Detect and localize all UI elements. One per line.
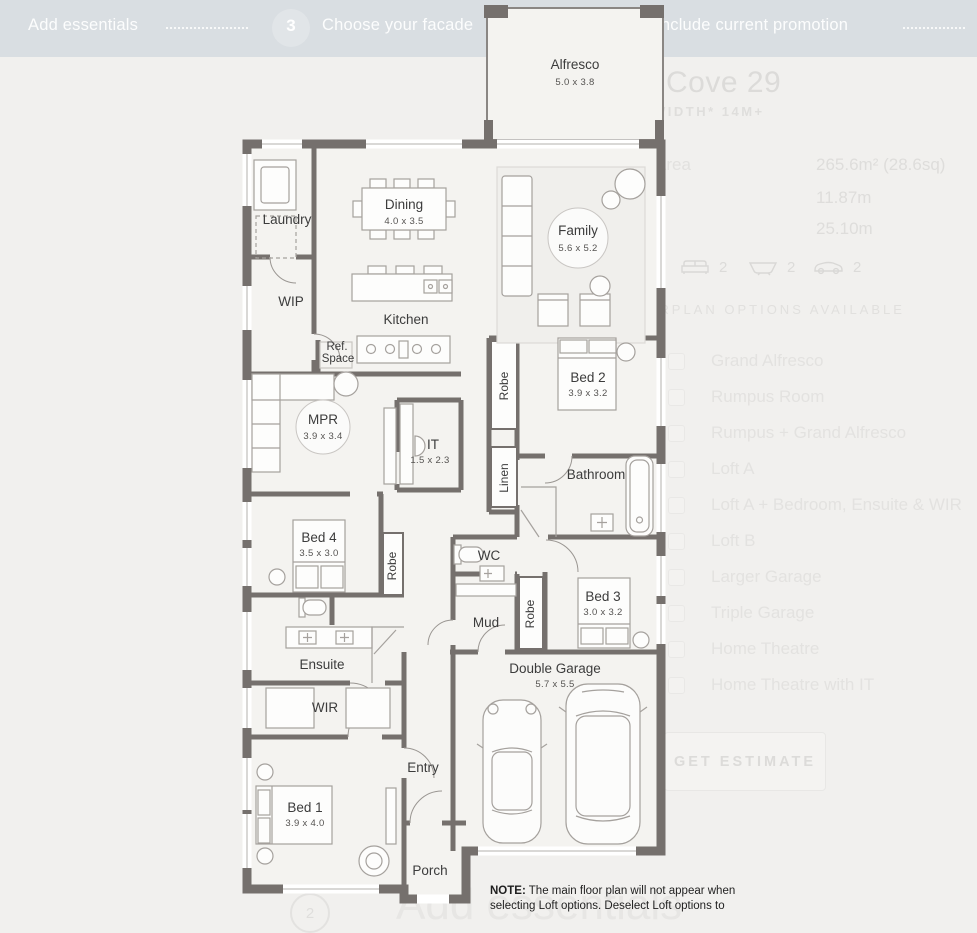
room-label-porch: Porch	[412, 863, 447, 878]
it-desk	[400, 404, 413, 484]
mpr-desk	[384, 408, 396, 484]
room-label-robe: Robe	[497, 371, 511, 400]
room-dim-alfresco: 5.0 x 3.8	[555, 77, 594, 88]
room-dim-mpr: 3.9 x 3.4	[303, 431, 342, 442]
car-suv	[559, 684, 647, 844]
bedside-table	[633, 632, 649, 648]
room-dim-family: 5.6 x 5.2	[558, 243, 597, 254]
bedside-table	[257, 848, 273, 864]
family-sofa	[502, 176, 532, 296]
mpr-table	[334, 372, 358, 396]
bathroom-basin	[591, 514, 613, 531]
room-dim-bed4: 3.5 x 3.0	[299, 548, 338, 559]
note-prefix: NOTE:	[490, 885, 526, 897]
note-text: The main floor plan will not appear when…	[490, 885, 735, 912]
room-label-bed1: Bed 1	[287, 800, 322, 815]
room-label-ref-space: Space	[322, 353, 355, 365]
room-dim-garage: 5.7 x 5.5	[535, 679, 574, 690]
room-label-linen: Linen	[497, 463, 511, 492]
room-label-bathroom: Bathroom	[567, 467, 626, 482]
room-label-mpr: MPR	[308, 412, 338, 427]
ensuite-toilet	[299, 598, 326, 617]
room-label-wip: WIP	[278, 294, 304, 309]
bedside-table	[257, 764, 273, 780]
room-label-ensuite: Ensuite	[299, 657, 344, 672]
room-dim-bed2: 3.9 x 3.2	[568, 388, 607, 399]
room-label-bed4: Bed 4	[301, 530, 337, 545]
room-label-entry: Entry	[407, 760, 439, 775]
room-label-laundry: Laundry	[263, 212, 312, 227]
bathtub	[626, 456, 653, 536]
room-dim-it: 1.5 x 2.3	[410, 455, 449, 466]
room-dim-bed3: 3.0 x 3.2	[583, 607, 622, 618]
room-label-dining: Dining	[385, 197, 423, 212]
room-label-ref: Ref.	[326, 341, 347, 353]
wc-basin	[480, 566, 504, 581]
bed1-dresser	[386, 788, 396, 844]
bed1-bed	[256, 786, 332, 844]
room-label-bed3: Bed 3	[585, 589, 620, 604]
room-label-bed2: Bed 2	[570, 370, 605, 385]
room-label-alfresco: Alfresco	[551, 57, 600, 72]
mud-bench	[456, 584, 516, 596]
car-sports	[477, 700, 547, 843]
ensuite-vanity	[286, 627, 372, 648]
room-dim-dining: 4.0 x 3.5	[384, 216, 423, 227]
room-label-garage: Double Garage	[509, 661, 601, 676]
bedside-table	[617, 343, 635, 361]
room-label-robe: Robe	[523, 599, 537, 628]
laundry-sink	[254, 160, 296, 210]
room-label-robe: Robe	[385, 551, 399, 580]
floorplan-note: NOTE: The main floor plan will not appea…	[490, 884, 754, 914]
room-label-mud: Mud	[473, 615, 499, 630]
room-dim-bed1: 3.9 x 4.0	[285, 818, 324, 829]
stove	[357, 336, 450, 363]
room-label-family: Family	[558, 223, 598, 238]
room-label-wir: WIR	[312, 700, 338, 715]
alfresco-structure	[484, 5, 664, 142]
bedside-table	[269, 569, 285, 585]
bed1-chair	[359, 846, 389, 876]
side-table	[590, 276, 610, 296]
floorplan: Alfresco 5.0 x 3.8 Laundry WIP Dining 4.…	[0, 0, 977, 911]
room-label-kitchen: Kitchen	[383, 312, 428, 327]
room-label-wc: WC	[478, 548, 501, 563]
room-label-it: IT	[427, 437, 439, 452]
